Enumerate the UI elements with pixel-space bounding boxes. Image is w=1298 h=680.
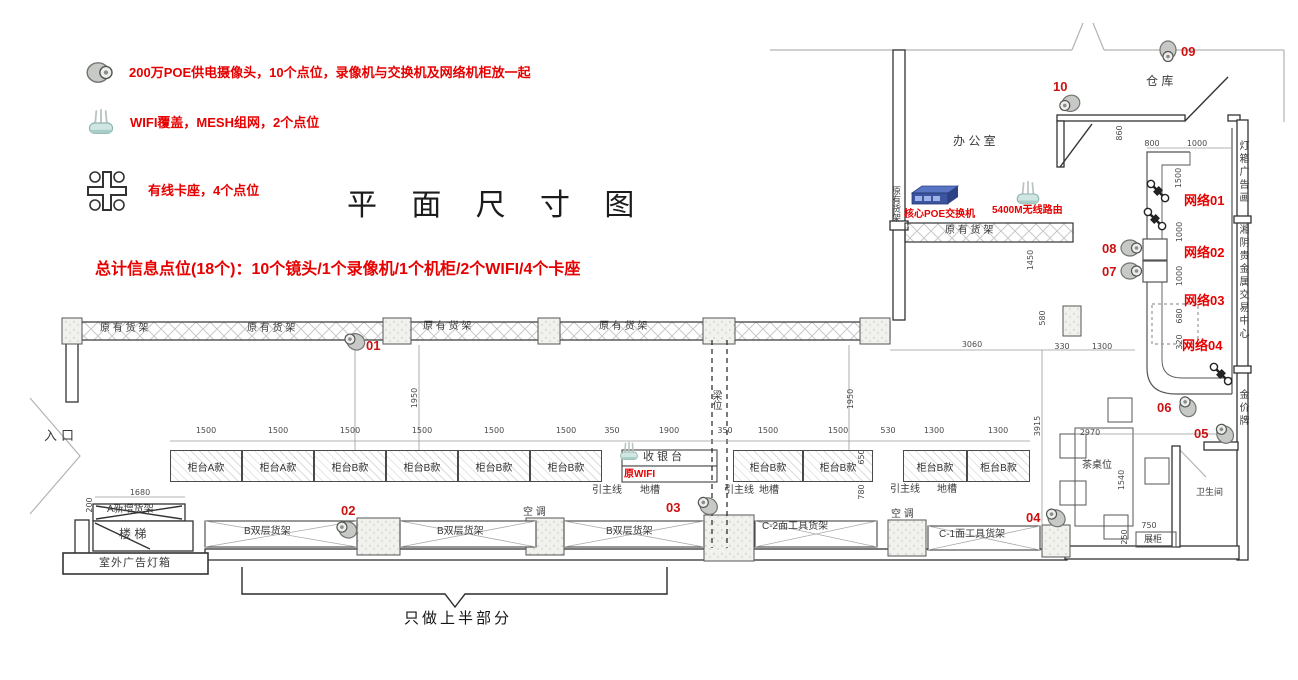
- dimension-label: 3060: [962, 341, 982, 349]
- cad-label: 引主线: [592, 486, 622, 496]
- dimension-label: 1000: [1176, 222, 1184, 242]
- cad-label: 原有货架: [891, 186, 900, 222]
- camera-02-icon: [331, 515, 361, 543]
- cad-label: C-1面工具货架: [939, 530, 1005, 540]
- camera-04-icon: [1039, 502, 1070, 533]
- cad-label: 楼 梯: [119, 528, 146, 540]
- camera-01-icon: [339, 327, 369, 355]
- dimension-label: 1000: [1187, 140, 1207, 148]
- cad-label: 梁位: [710, 390, 720, 410]
- camera-02-label: 02: [341, 504, 355, 517]
- dimension-label: 1950: [847, 389, 855, 409]
- wifi-router-small-icon: [618, 441, 640, 463]
- cad-label: 引主线: [890, 485, 920, 495]
- camera-03-icon: [691, 490, 722, 520]
- dimension-label: 860: [1116, 125, 1124, 140]
- dimension-label: 250: [1121, 529, 1129, 544]
- camera-10-label: 10: [1053, 80, 1067, 93]
- cad-label: 地槽: [759, 486, 779, 496]
- dimension-label: 1500: [758, 427, 778, 435]
- camera-07-label: 07: [1102, 265, 1116, 278]
- counter-box: 柜台A款: [170, 450, 242, 482]
- dimension-label: 1450: [1027, 250, 1035, 270]
- camera-07-icon: [1120, 261, 1144, 281]
- dimension-label: 1000: [1176, 266, 1184, 286]
- cad-label: 原 有 货 架: [945, 226, 993, 236]
- camera-09-label: 09: [1181, 45, 1195, 58]
- network-point-label: 网络04: [1182, 339, 1222, 352]
- cad-label: B双层货架: [606, 527, 653, 537]
- dimension-label: 1300: [924, 427, 944, 435]
- dimension-label: 750: [1141, 522, 1156, 530]
- counter-box: 柜台B款: [530, 450, 602, 482]
- dimension-label: 1500: [340, 427, 360, 435]
- cad-label: 办 公 室: [953, 135, 996, 147]
- poe-switch-icon: [906, 184, 962, 210]
- wall-side-text: 湘阴贵金属交易中心: [1237, 224, 1247, 341]
- cad-label: 收 银 台: [643, 452, 682, 463]
- dimension-label: 1500: [556, 427, 576, 435]
- dimension-label: 1500: [196, 427, 216, 435]
- cad-label: 原 有 货 架: [247, 324, 295, 334]
- dimension-label: 1540: [1118, 470, 1126, 490]
- dimension-label: 1500: [828, 427, 848, 435]
- dimension-label: 580: [1039, 310, 1047, 325]
- camera-08-icon: [1120, 238, 1144, 258]
- cad-label: 茶桌位: [1082, 461, 1112, 471]
- network-point-label: 网络03: [1184, 294, 1224, 307]
- camera-06-icon: [1173, 391, 1201, 421]
- camera-05-label: 05: [1194, 427, 1208, 440]
- cad-label: 空 调: [891, 510, 914, 520]
- dimension-label: 2970: [1080, 429, 1100, 437]
- camera-03-label: 03: [666, 501, 680, 514]
- dimension-label: 800: [1144, 140, 1159, 148]
- camera-05-icon: [1209, 417, 1239, 448]
- dimension-label: 1500: [268, 427, 288, 435]
- dimension-label: 200: [86, 497, 94, 512]
- device-label: 核心POE交换机: [904, 210, 975, 220]
- wall-side-text: 金价牌: [1237, 389, 1247, 428]
- dimension-label: 350: [717, 427, 732, 435]
- card-seat-icon: [1139, 203, 1170, 234]
- counter-box: 柜台B款: [733, 450, 803, 482]
- cad-label: C-2面工具货架: [762, 522, 828, 532]
- cad-label: 原 有 货 架: [100, 324, 148, 334]
- cad-label: 空 调: [523, 508, 546, 518]
- camera-04-label: 04: [1026, 511, 1040, 524]
- dimension-label: 330: [1054, 343, 1069, 351]
- counter-box: 柜台B款: [967, 450, 1030, 482]
- cad-label: 室外广告灯箱: [99, 558, 171, 569]
- dimension-label: 530: [880, 427, 895, 435]
- counter-box: 柜台B款: [903, 450, 967, 482]
- dimension-label: 1680: [130, 489, 150, 497]
- camera-08-label: 08: [1102, 242, 1116, 255]
- dimension-label: 1900: [659, 427, 679, 435]
- dimension-label: 780: [858, 484, 866, 499]
- card-seat-icon: [1142, 175, 1173, 206]
- dimension-label: 320: [1176, 334, 1184, 349]
- camera-01-label: 01: [366, 339, 380, 352]
- counter-box: 柜台B款: [314, 450, 386, 482]
- cad-label: B双层货架: [244, 527, 291, 537]
- cad-label: 原 有 货 架: [599, 322, 647, 332]
- card-seat-icon: [1205, 358, 1236, 389]
- cad-label: 仓 库: [1146, 75, 1173, 87]
- plan-annotation-layer: 办 公 室仓 库入口楼 梯A新增货架室外广告灯箱原 有 货 架原 有 货 架原 …: [0, 0, 1298, 680]
- cad-label: B双层货架: [437, 527, 484, 537]
- dimension-label: 3915: [1034, 416, 1042, 436]
- dimension-label: 1950: [411, 388, 419, 408]
- wall-side-text: 灯箱广告画: [1237, 140, 1247, 205]
- wifi-router-icon: [1014, 180, 1042, 208]
- network-point-label: 网络01: [1184, 194, 1224, 207]
- cad-label: 入口: [44, 429, 78, 442]
- dimension-label: 1500: [484, 427, 504, 435]
- camera-10-icon: [1054, 90, 1083, 117]
- cad-label: 地槽: [640, 486, 660, 496]
- dimension-label: 1300: [988, 427, 1008, 435]
- counter-box: 柜台A款: [242, 450, 314, 482]
- cad-label: 引主线: [724, 486, 754, 496]
- dimension-label: 350: [604, 427, 619, 435]
- floorplan-canvas: 200万POE供电摄像头，10个点位，录像机与交换机及网络机柜放一起 WIFI覆…: [0, 0, 1298, 680]
- camera-09-icon: [1158, 40, 1178, 64]
- cad-label: 展柜: [1144, 535, 1162, 544]
- dimension-label: 650: [858, 449, 866, 464]
- dimension-label: 1500: [1175, 168, 1183, 188]
- dimension-label: 1500: [412, 427, 432, 435]
- camera-06-label: 06: [1157, 401, 1171, 414]
- device-label: 原WIFI: [624, 470, 655, 480]
- dimension-label: 1300: [1092, 343, 1112, 351]
- counter-box: 柜台B款: [386, 450, 458, 482]
- cad-label: 地槽: [937, 485, 957, 495]
- dimension-label: 680: [1176, 308, 1184, 323]
- counter-box: 柜台B款: [458, 450, 530, 482]
- cad-label: 卫生间: [1196, 488, 1223, 497]
- network-point-label: 网络02: [1184, 246, 1224, 259]
- cad-label: 原 有 货 架: [423, 322, 471, 332]
- cad-label: A新增货架: [107, 505, 154, 515]
